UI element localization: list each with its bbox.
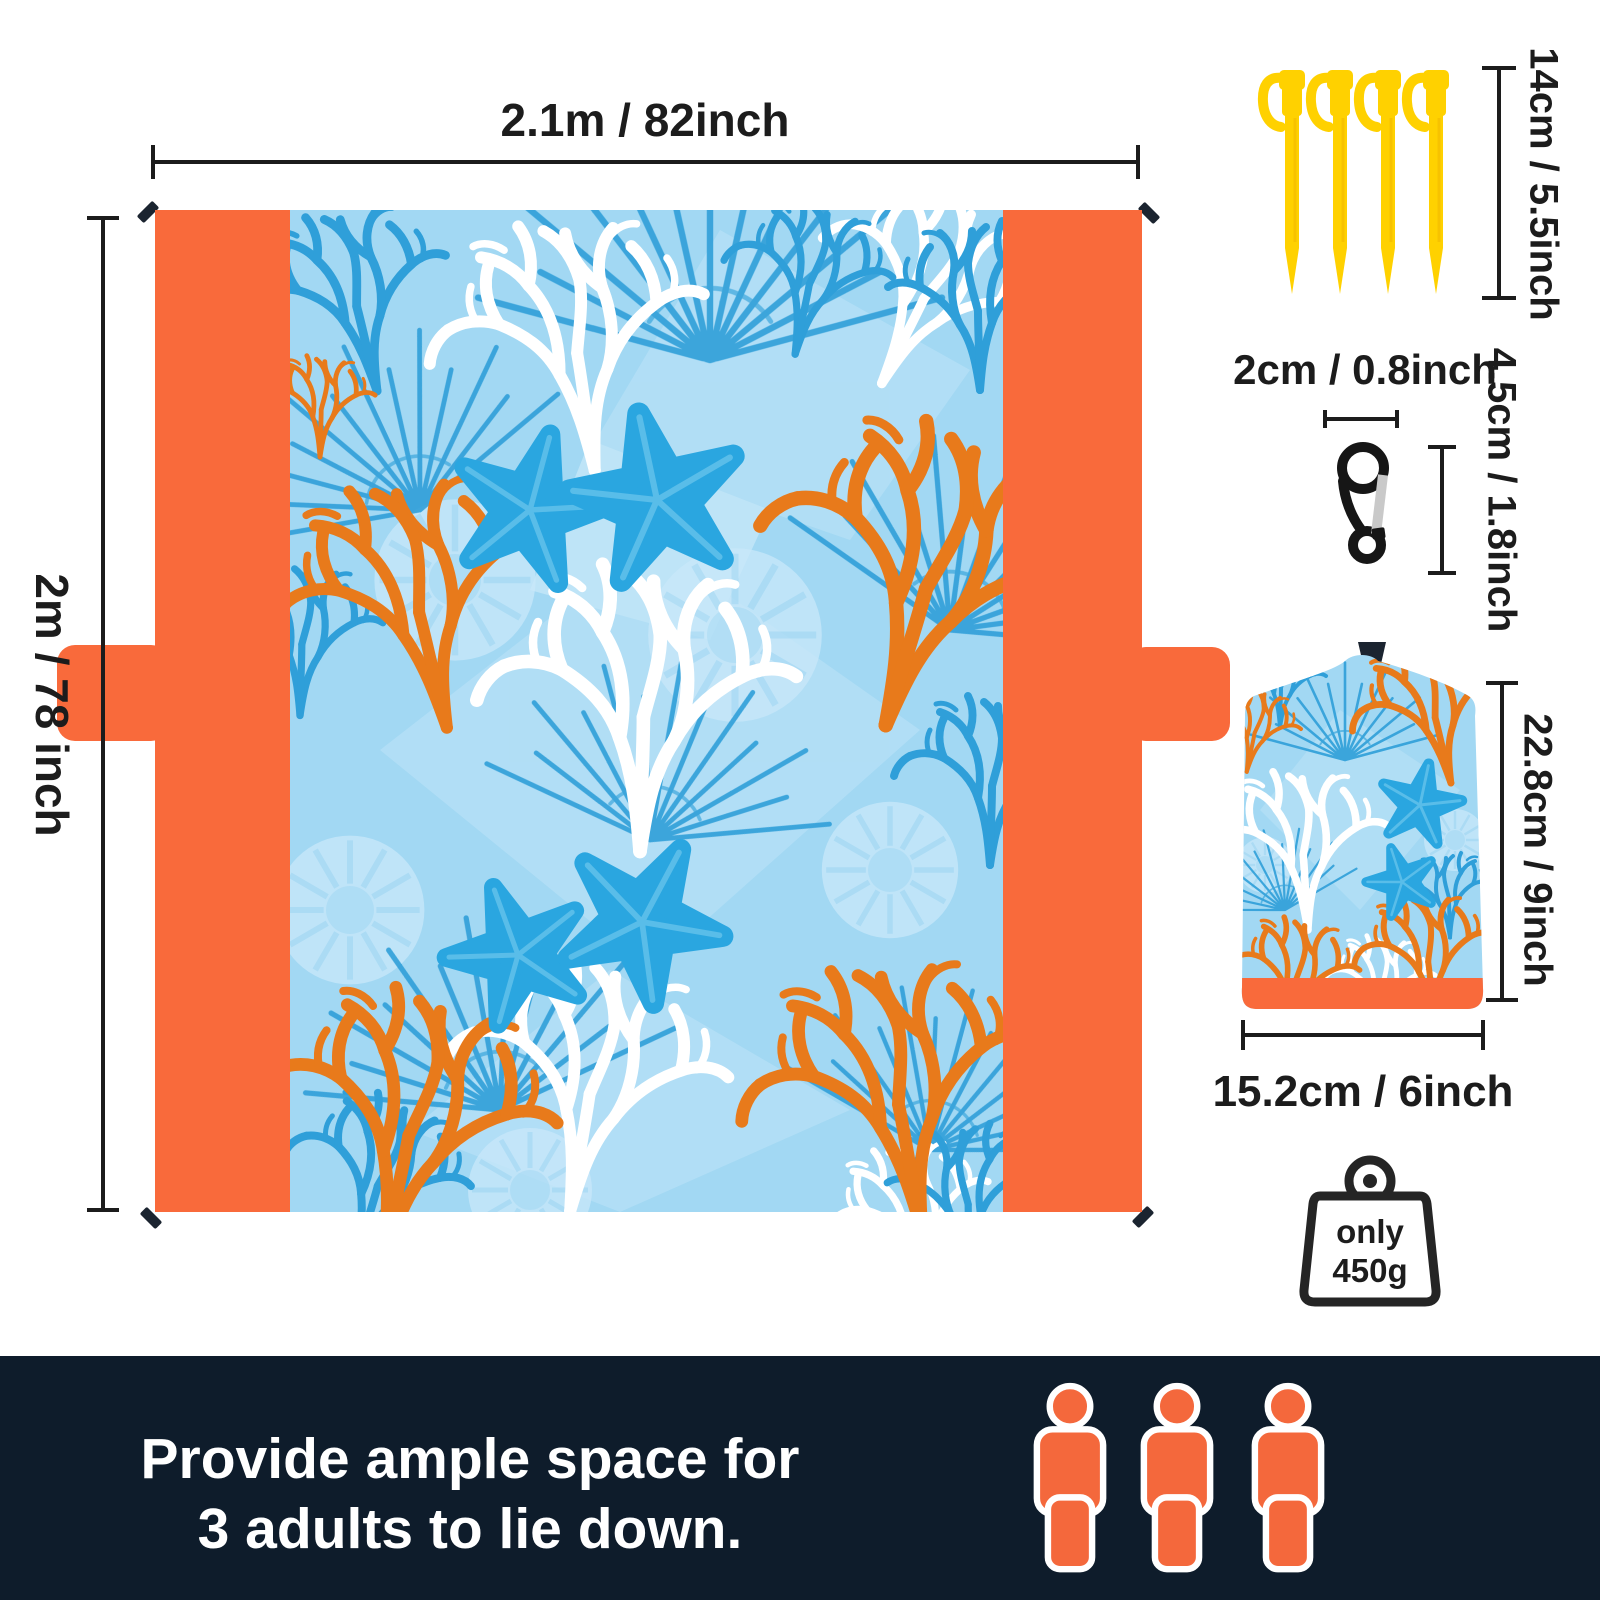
blanket-right-tab <box>1128 647 1230 741</box>
storage-bag <box>1187 624 1527 1042</box>
tent-stakes <box>1263 70 1449 294</box>
weight-label: only 450g <box>1332 1213 1407 1291</box>
bag-width-label: 15.2cm / 6inch <box>1213 1067 1514 1117</box>
weight-label-line1: only <box>1332 1213 1407 1252</box>
bag-bottom-strip <box>1235 978 1488 1018</box>
carabiner <box>1342 447 1386 559</box>
weight-label-line2: 450g <box>1332 1252 1407 1291</box>
carabiner-height-label: 4.5cm / 1.8inch <box>1479 348 1524 633</box>
carabiner-width-label: 2cm / 0.8inch <box>1233 346 1497 394</box>
stake-length-label: 14cm / 5.5inch <box>1521 47 1566 320</box>
banner-text: Provide ample space for 3 adults to lie … <box>60 1425 880 1564</box>
banner-line2: 3 adults to lie down. <box>60 1495 880 1565</box>
bag-height-label: 22.8cm / 9inch <box>1515 713 1560 986</box>
blanket-height-label: 2m / 78 inch <box>25 573 79 836</box>
blanket-illustration <box>57 120 1230 1315</box>
blanket-width-label: 2.1m / 82inch <box>501 93 790 147</box>
banner-line1: Provide ample space for <box>60 1425 880 1495</box>
person-icons <box>1037 1386 1321 1569</box>
infographic-scene <box>0 0 1600 1600</box>
